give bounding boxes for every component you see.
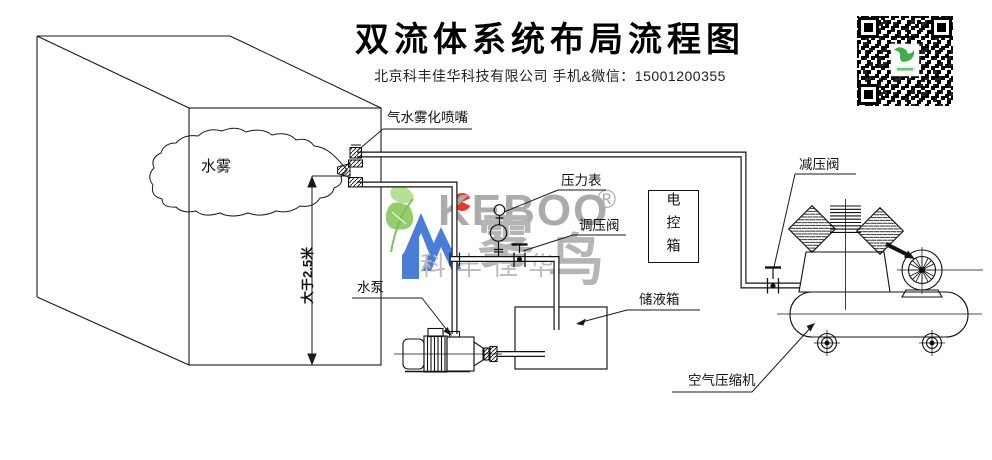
label-control-box: 电控箱 bbox=[664, 192, 684, 261]
wheel-icon bbox=[814, 330, 840, 356]
label-nozzle: 气水雾化喷嘴 bbox=[387, 111, 468, 126]
mist-cloud bbox=[150, 128, 347, 216]
label-regulating-valve: 调压阀 bbox=[579, 219, 620, 234]
page-subtitle: 北京科丰佳华科技有限公司 手机&微信：15001200355 bbox=[300, 66, 800, 86]
label-min-height: 大于2.5米 bbox=[297, 234, 316, 304]
label-water-mist: 水雾 bbox=[201, 159, 231, 176]
label-reducing-valve: 减压阀 bbox=[799, 158, 840, 173]
label-water-pump: 水泵 bbox=[357, 281, 384, 296]
diagram-canvas: KEBOO ® 雾 鸟 科丰佳华 bbox=[0, 0, 992, 460]
air-compressor-symbol bbox=[777, 199, 983, 356]
label-air-compressor: 空气压缩机 bbox=[688, 374, 756, 389]
wheel-icon bbox=[919, 330, 945, 356]
manifold-pipe bbox=[450, 253, 557, 331]
wechat-qr-code bbox=[855, 14, 955, 113]
qr-center-logo bbox=[891, 44, 919, 76]
regulating-valve-symbol bbox=[512, 245, 528, 268]
water-pump-symbol bbox=[394, 329, 502, 373]
water-pipe bbox=[357, 185, 455, 335]
label-pressure-gauge: 压力表 bbox=[561, 174, 602, 189]
pressure-gauge-symbol bbox=[490, 205, 506, 257]
qr-code-graphic bbox=[855, 14, 955, 108]
title-block: 双流体系统布局流程图 北京科丰佳华科技有限公司 手机&微信：1500120035… bbox=[300, 12, 800, 86]
page-title: 双流体系统布局流程图 bbox=[300, 12, 800, 61]
control-box: 电控箱 bbox=[648, 190, 699, 263]
label-liquid-tank: 储液箱 bbox=[639, 293, 680, 308]
liquid-tank-outline bbox=[515, 307, 607, 369]
reducing-valve-symbol bbox=[765, 268, 781, 294]
